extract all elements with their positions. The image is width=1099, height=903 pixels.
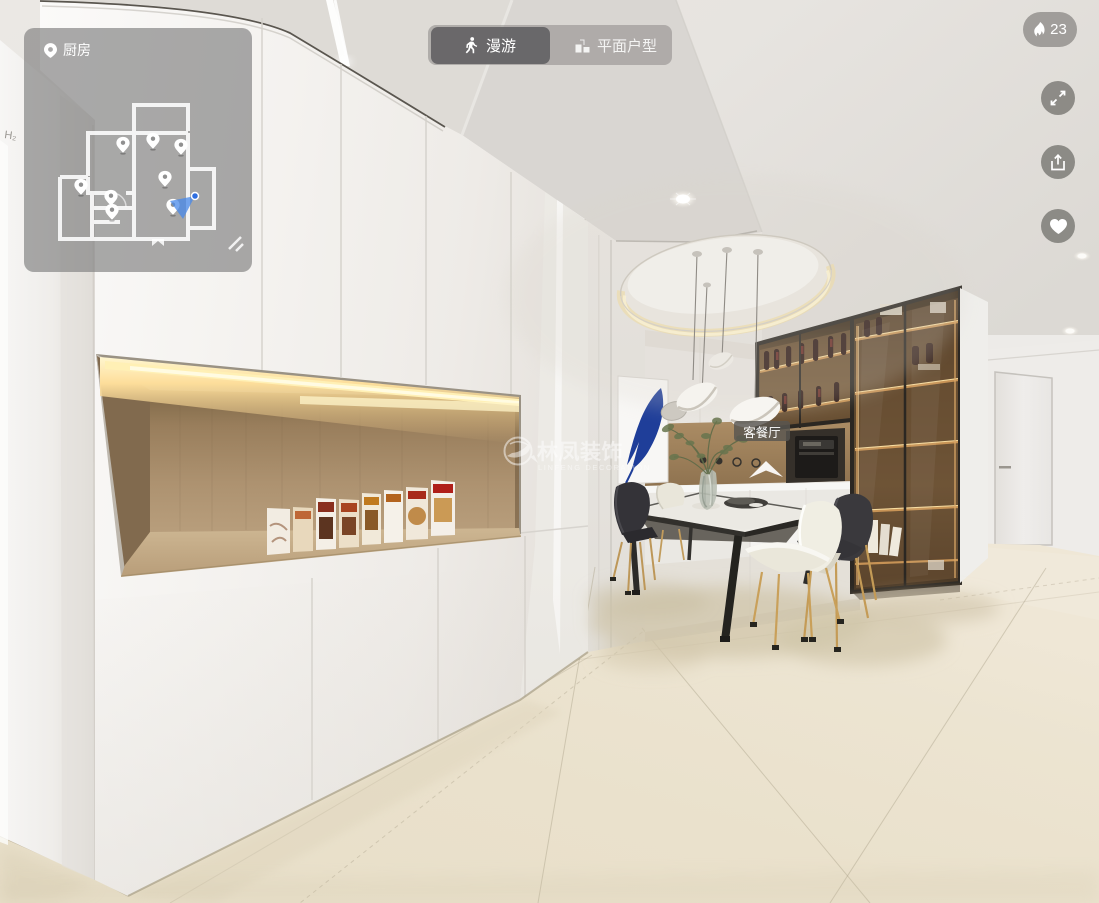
svg-text:LINFENG DECORATION: LINFENG DECORATION — [538, 463, 651, 472]
svg-text:H₂: H₂ — [4, 129, 18, 143]
svg-text:林凤装饰: 林凤装饰 — [537, 440, 623, 464]
